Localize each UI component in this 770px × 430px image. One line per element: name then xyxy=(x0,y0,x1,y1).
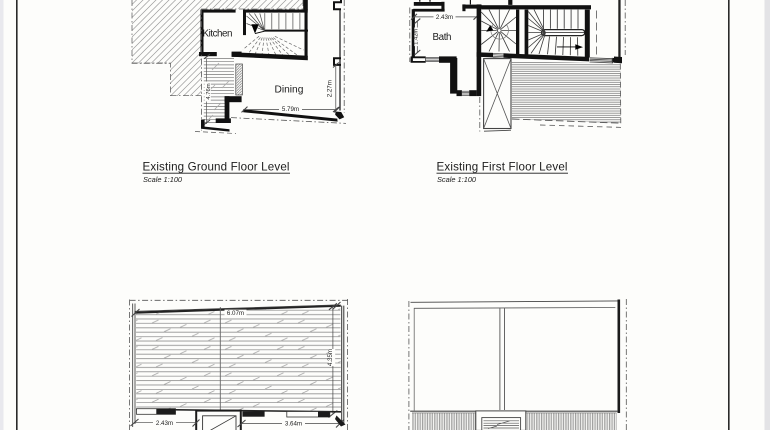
svg-text:6.07m: 6.07m xyxy=(227,310,244,317)
svg-text:Dining: Dining xyxy=(275,85,304,96)
svg-text:1.42m: 1.42m xyxy=(413,29,419,45)
svg-text:Scale 1:100: Scale 1:100 xyxy=(143,175,183,184)
svg-text:5.79m: 5.79m xyxy=(282,106,299,113)
svg-text:2.27m: 2.27m xyxy=(327,80,334,97)
svg-text:4.35m: 4.35m xyxy=(327,349,334,366)
svg-text:Existing First Floor Level: Existing First Floor Level xyxy=(437,161,568,174)
svg-text:Kitchen: Kitchen xyxy=(203,29,233,40)
svg-text:4.76m: 4.76m xyxy=(206,83,212,99)
svg-text:Bath: Bath xyxy=(433,32,452,43)
svg-text:3.64m: 3.64m xyxy=(285,421,302,428)
svg-text:Existing Ground Floor Level: Existing Ground Floor Level xyxy=(143,161,290,174)
svg-text:2.43m: 2.43m xyxy=(156,420,173,427)
svg-text:Scale 1:100: Scale 1:100 xyxy=(437,175,477,184)
svg-text:2.43m: 2.43m xyxy=(436,14,453,21)
